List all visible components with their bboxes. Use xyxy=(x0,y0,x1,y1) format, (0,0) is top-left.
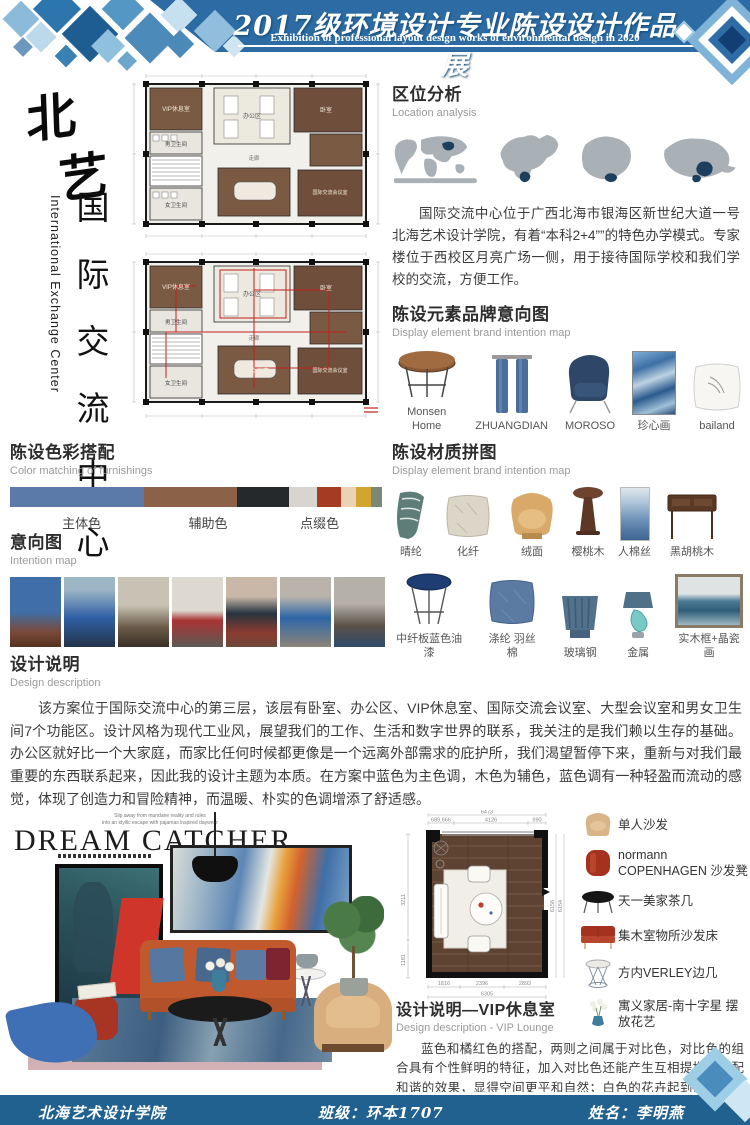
material-item: 樱桃木 xyxy=(571,485,605,560)
location-heading: 区位分析 xyxy=(392,80,740,105)
materials-subheading: Display element brand intention map xyxy=(392,465,744,477)
room-label-female-wc: 女卫生间 xyxy=(165,201,187,209)
room-label-male-wc: 男卫生间 xyxy=(165,140,187,148)
room-label-corridor: 走廊 xyxy=(248,334,260,342)
dim-top-total: 6473 xyxy=(481,810,493,816)
dim-top-seg: 689,666 xyxy=(431,818,451,824)
intention-subheading: Intention map xyxy=(10,555,388,567)
dim-bottom-seg: 2396 xyxy=(476,981,488,987)
material-item: 实木框+晶瓷画 xyxy=(674,574,744,661)
material-item: 绒面 xyxy=(506,489,558,560)
cherry-table-icon xyxy=(571,485,605,541)
abstract-painting-icon xyxy=(632,351,676,415)
intention-section: 意向图 Intention map xyxy=(10,528,388,647)
location-subheading: Location analysis xyxy=(392,107,740,119)
intention-photo xyxy=(172,577,223,647)
armchair-icon xyxy=(562,353,618,415)
room-label-large-meeting: 大型会议室 xyxy=(239,367,269,375)
material-item: 晴纶 xyxy=(392,489,430,560)
pendant-lamp-icon xyxy=(214,812,216,858)
intention-photo xyxy=(64,577,115,647)
fiber-pillow-icon xyxy=(443,491,493,541)
acrylic-throw-icon xyxy=(392,489,430,541)
design-description-section: 设计说明 Design description 该方案位于国际交流中心的第三层，… xyxy=(10,650,742,810)
dim-bottom-seg: 2893 xyxy=(519,981,531,987)
furniture-item: 天一美家茶几 xyxy=(578,889,750,915)
poster-subtitle: Exhibition of professional layout design… xyxy=(225,32,685,44)
intention-photo xyxy=(226,577,277,647)
flowers xyxy=(204,958,234,974)
intention-heading: 意向图 xyxy=(10,528,388,553)
rayon-swatch-icon xyxy=(620,487,650,541)
room-label-vip: VIP休息室 xyxy=(162,283,190,291)
room-label-intl-meeting: 国际交流会议室 xyxy=(312,189,347,196)
brand-item: ZHUANGDIAN xyxy=(475,353,548,434)
header: 2017级环境设计专业陈设设计作品展 Exhibition of profess… xyxy=(0,0,750,52)
dim-right: 6156 xyxy=(550,900,556,912)
single-sofa-icon xyxy=(578,812,618,838)
dim-left: 1181 xyxy=(401,954,407,966)
floor-plan-1: VIP休息室 男卫生间 女卫生间 办公区 走廊 大型会议室 卧室 国际交流会议室 xyxy=(126,72,388,247)
materials-section: 陈设材质拼图 Display element brand intention m… xyxy=(392,438,744,660)
plant xyxy=(316,896,392,996)
room-label-office: 办公区 xyxy=(243,112,261,120)
dim-top-seg: 4126 xyxy=(485,818,497,824)
design-desc-heading: 设计说明 xyxy=(10,650,742,675)
world-map xyxy=(392,131,479,187)
pouf-icon xyxy=(578,848,618,878)
sofa-bed-icon xyxy=(578,924,618,950)
brand-section: 陈设元素品牌意向图 Display element brand intentio… xyxy=(392,300,744,434)
room-label-vip: VIP休息室 xyxy=(162,105,190,113)
china-map xyxy=(489,130,560,188)
location-section: 区位分析 Location analysis xyxy=(392,80,740,290)
pillow-icon xyxy=(690,359,744,415)
room-label-office: 办公区 xyxy=(243,290,261,298)
brand-item: Monsen Home xyxy=(392,347,461,434)
intention-photo xyxy=(280,577,331,647)
location-paragraph: 国际交流中心位于广西北海市银海区新世纪大道一号北海艺术设计学院，有着“本科2+4… xyxy=(392,203,740,290)
painting-caption xyxy=(58,854,152,858)
color-bar xyxy=(10,487,382,507)
intention-photo xyxy=(10,577,61,647)
room-label-intl-meeting: 国际交流会议室 xyxy=(312,367,347,374)
material-item: 黑胡桃木 xyxy=(664,487,720,560)
material-item: 人棉丝 xyxy=(618,487,651,560)
beihai-map xyxy=(651,130,740,188)
room-label-corridor: 走廊 xyxy=(248,154,260,162)
vip-desc-subheading: Design description - VIP Lounge xyxy=(396,1022,744,1034)
materials-heading: 陈设材质拼图 xyxy=(392,438,744,463)
vip-lounge-plan: 6473 689,666 4126 990 3211 1181 6156 615… xyxy=(398,810,574,1009)
dim-top-seg: 990 xyxy=(532,818,541,824)
crystal-porcelain-art-icon xyxy=(675,574,743,628)
class-label: 班级：环本1707 xyxy=(318,1102,444,1123)
velvet-chair-icon xyxy=(506,489,558,541)
dim-right: 6154 xyxy=(558,900,564,912)
furniture-item: 方内VERLEY边几 xyxy=(578,959,750,989)
design-desc-subheading: Design description xyxy=(10,677,742,689)
color-heading: 陈设色彩搭配 xyxy=(10,438,388,463)
brand-item: bailand xyxy=(690,359,744,434)
room-label-large-meeting: 大型会议室 xyxy=(239,189,269,197)
room-label-bedroom: 卧室 xyxy=(320,284,332,292)
brand-subheading: Display element brand intention map xyxy=(392,327,744,339)
design-desc-paragraph: 该方案位于国际交流中心的第三层，该层有卧室、办公区、VIP休息室、国际交流会议室… xyxy=(10,697,742,810)
room-label-female-wc: 女卫生间 xyxy=(165,379,187,387)
school-name: 北海艺术设计学院 xyxy=(38,1102,166,1123)
mdf-blue-table-icon xyxy=(402,572,456,628)
intention-photo xyxy=(118,577,169,647)
dim-bottom-seg: 1816 xyxy=(438,981,450,987)
polyester-pillow-icon xyxy=(486,576,538,628)
color-subheading: Color matching of furnishings xyxy=(10,465,388,477)
coffee-table-legs xyxy=(184,1018,256,1046)
material-item: 化纤 xyxy=(443,491,493,560)
fiberglass-pot-icon xyxy=(558,590,602,642)
furniture-item: 单人沙发 xyxy=(578,812,750,838)
vip-desc-heading: 设计说明—VIP休息室 xyxy=(396,996,744,1020)
room-label-male-wc: 男卫生间 xyxy=(165,318,187,326)
furniture-item: 集木室物所沙发床 xyxy=(578,924,750,950)
material-item: 涤纶 羽丝棉 xyxy=(484,576,540,661)
vip-lounge-render: Slip away from mundane reality and rules… xyxy=(0,812,392,1090)
brand-item: 珍心画 xyxy=(632,351,676,434)
color-section: 陈设色彩搭配 Color matching of furnishings 主体色… xyxy=(10,438,388,529)
curtains-icon xyxy=(490,353,534,415)
coffee-table-small-icon xyxy=(578,889,618,915)
side-table-icon xyxy=(578,959,618,989)
furniture-item: normann COPENHAGEN 沙发凳 xyxy=(578,847,750,880)
material-item: 中纤板蓝色油漆 xyxy=(392,572,466,661)
brand-heading: 陈设元素品牌意向图 xyxy=(392,300,744,325)
dim-left: 3211 xyxy=(401,894,407,906)
walnut-console-icon xyxy=(664,487,720,541)
floor-plan-2: VIP休息室 男卫生间 女卫生间 办公区 走廊 大型会议室 卧室 国际交流会议室 xyxy=(126,250,388,427)
header-underline xyxy=(238,45,738,47)
metal-lamp-icon xyxy=(620,588,656,642)
poster: 2017级环境设计专业陈设设计作品展 Exhibition of profess… xyxy=(0,0,750,1125)
coffee-table-icon xyxy=(394,347,460,401)
footer: 北海艺术设计学院 班级：环本1707 姓名：李明燕 xyxy=(0,1092,750,1125)
brand-item: MOROSO xyxy=(562,353,618,434)
room-label-bedroom: 卧室 xyxy=(320,106,332,114)
intention-photo xyxy=(334,577,385,647)
table-lamp-icon xyxy=(296,954,318,968)
student-name: 姓名：李明燕 xyxy=(588,1102,684,1123)
guangxi-map xyxy=(570,130,641,188)
